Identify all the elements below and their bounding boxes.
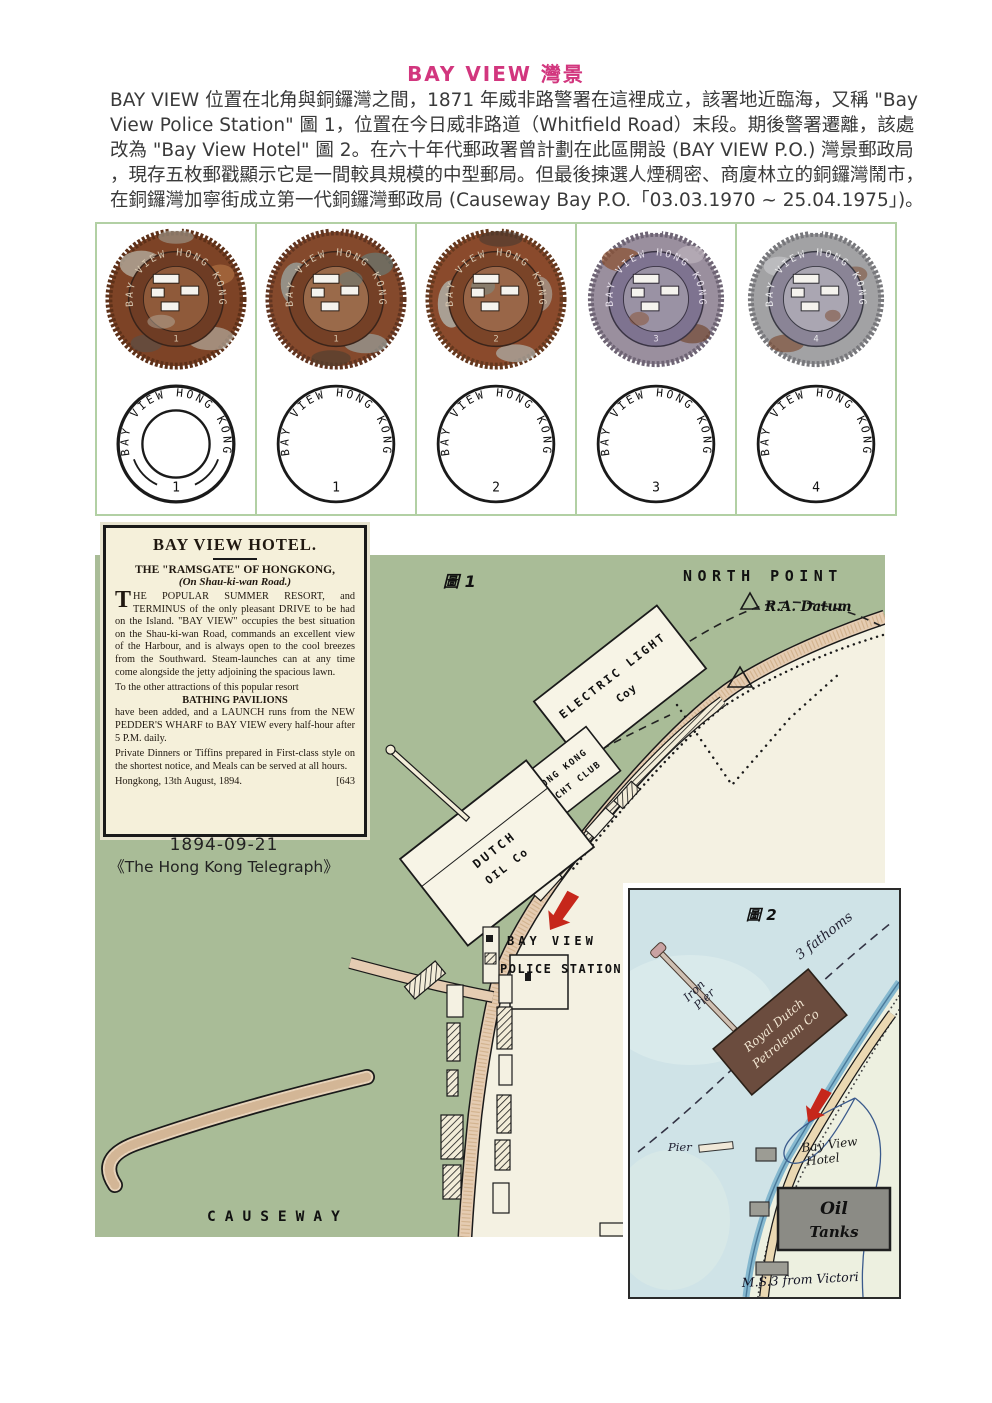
postmark-cell-1: BAY VIEW HONG KONG 1 BAY VIEW HONG: [97, 224, 255, 514]
police-hatched-mark: [485, 953, 496, 964]
postmark-grid: BAY VIEW HONG KONG 1 BAY VIEW HONG: [95, 222, 897, 516]
postmark-imprint-drawing: BAY VIEW HONG KONG 3: [586, 374, 726, 514]
map-figure-2: Iron Pier Royal Dutch Petroleum Co 3 fat…: [628, 888, 901, 1299]
clipping-dateline-row: Hongkong, 13th August, 1894. [643: [115, 776, 355, 787]
causeway-label: CAUSEWAY: [207, 1209, 349, 1225]
bay-view-label: BAY VIEW: [507, 934, 597, 948]
postmark-chop-image: BAY VIEW HONG KONG 4: [742, 224, 890, 374]
imprint-number: 3: [652, 481, 660, 496]
clipping-title: BAY VIEW HOTEL.: [115, 535, 355, 555]
oil-tanks-label: Oil: [820, 1199, 848, 1219]
oil-tanks-label-2: Tanks: [809, 1223, 859, 1241]
postmark-cell-3: BAY VIEW HONG KONG 2 BAY VIEW HONG KONG …: [415, 224, 575, 514]
chop-number: 3: [653, 334, 658, 344]
postmark-chop-image: BAY VIEW HONG KONG 1: [262, 224, 410, 374]
clipping-ref-number: [643: [336, 776, 355, 787]
chop-number: 4: [813, 334, 818, 344]
police-mark: [486, 935, 493, 942]
figure-2-label: 圖 2: [746, 906, 777, 924]
chop-number: 2: [493, 334, 498, 344]
intro-line: ，現存五枚郵戳顯示它是一間較具規模的中型郵局。但最後揀選人煙稠密、商廈林立的銅鑼…: [110, 163, 890, 188]
chop-number: 1: [333, 334, 338, 344]
postmark-chop-image: BAY VIEW HONG KONG 1: [102, 224, 250, 374]
postmark-cell-2: BAY VIEW HONG KONG 1 BAY VIEW HONG KONG …: [255, 224, 415, 514]
clipping-dateline: Hongkong, 13th August, 1894.: [115, 776, 242, 787]
postmark-imprint-drawing: BAY VIEW HONG KONG 4: [746, 374, 886, 514]
intro-paragraph: BAY VIEW 位置在北角與銅鑼灣之間，1871 年威非路警署在這裡成立，該署…: [110, 88, 890, 213]
pier-label: Pier: [667, 1140, 693, 1154]
intro-line: 改為 "Bay View Hotel" 圖 2。在六十年代郵政署曾計劃在此區開設…: [110, 138, 890, 163]
clipping-subtitle-2: (On Shau-ki-wan Road.): [115, 576, 355, 588]
clipping-paragraph-1: THE POPULAR SUMMER RESORT, and TERMINUS …: [115, 591, 355, 679]
clipping-paragraph-2c: have been added, and a LAUNCH runs from …: [115, 707, 355, 745]
clipping-bathing-pavilions: BATHING PAVILIONS: [115, 695, 355, 708]
north-point-label: NORTH POINT: [683, 567, 843, 585]
imprint-number: 4: [812, 481, 820, 496]
postmark-imprint-drawing: BAY VIEW HONG KONG 2: [426, 374, 566, 514]
postmark-cell-5: BAY VIEW HONG KONG 4 BAY VIEW HONG KONG …: [735, 224, 895, 514]
postmark-chop-image: BAY VIEW HONG KONG 2: [422, 224, 570, 374]
chop-number: 1: [173, 334, 178, 344]
intro-line: 在銅鑼灣加寧街成立第一代銅鑼灣郵政局 (Causeway Bay P.O.「03…: [110, 188, 890, 213]
intro-line: BAY VIEW 位置在北角與銅鑼灣之間，1871 年威非路警署在這裡成立，該署…: [110, 88, 890, 113]
intro-line: View Police Station" 圖 1，位置在今日威非路道（Whitf…: [110, 113, 890, 138]
imprint-number: 1: [332, 481, 340, 496]
police-station-label: POLICE STATION: [500, 962, 622, 976]
postmark-imprint-drawing: BAY VIEW HONG KONG 1: [266, 374, 406, 514]
document-page: BAY VIEW 灣景 BAY VIEW 位置在北角與銅鑼灣之間，1871 年威…: [0, 0, 992, 1403]
postmark-imprint-drawing: BAY VIEW HONG KONG 1: [106, 374, 246, 514]
clipping-subtitle: THE "RAMSGATE" OF HONGKONG,: [115, 564, 355, 576]
postmark-chop-image: BAY VIEW HONG KONG 3: [582, 224, 730, 374]
newspaper-clipping: BAY VIEW HOTEL. THE "RAMSGATE" OF HONGKO…: [103, 525, 367, 837]
caption-source: 《The Hong Kong Telegraph》: [95, 855, 353, 877]
caption-date: 1894-09-21: [95, 835, 353, 855]
clipping-caption: 1894-09-21 《The Hong Kong Telegraph》: [95, 835, 353, 877]
clipping-paragraph-3: Private Dinners or Tiffins prepared in F…: [115, 748, 355, 773]
clipping-paragraph-2a: To the other attractions of this popular…: [115, 682, 355, 695]
ra-datum-label: R.A. Datum: [764, 599, 852, 615]
imprint-number: 1: [172, 481, 180, 496]
postmark-cell-4: BAY VIEW HONG KONG 3 BAY VIEW HONG KONG …: [575, 224, 735, 514]
page-title: BAY VIEW 灣景: [0, 58, 992, 87]
figure-1-label: 圖 1: [443, 572, 476, 591]
imprint-number: 2: [492, 481, 500, 496]
divider: [213, 558, 257, 560]
